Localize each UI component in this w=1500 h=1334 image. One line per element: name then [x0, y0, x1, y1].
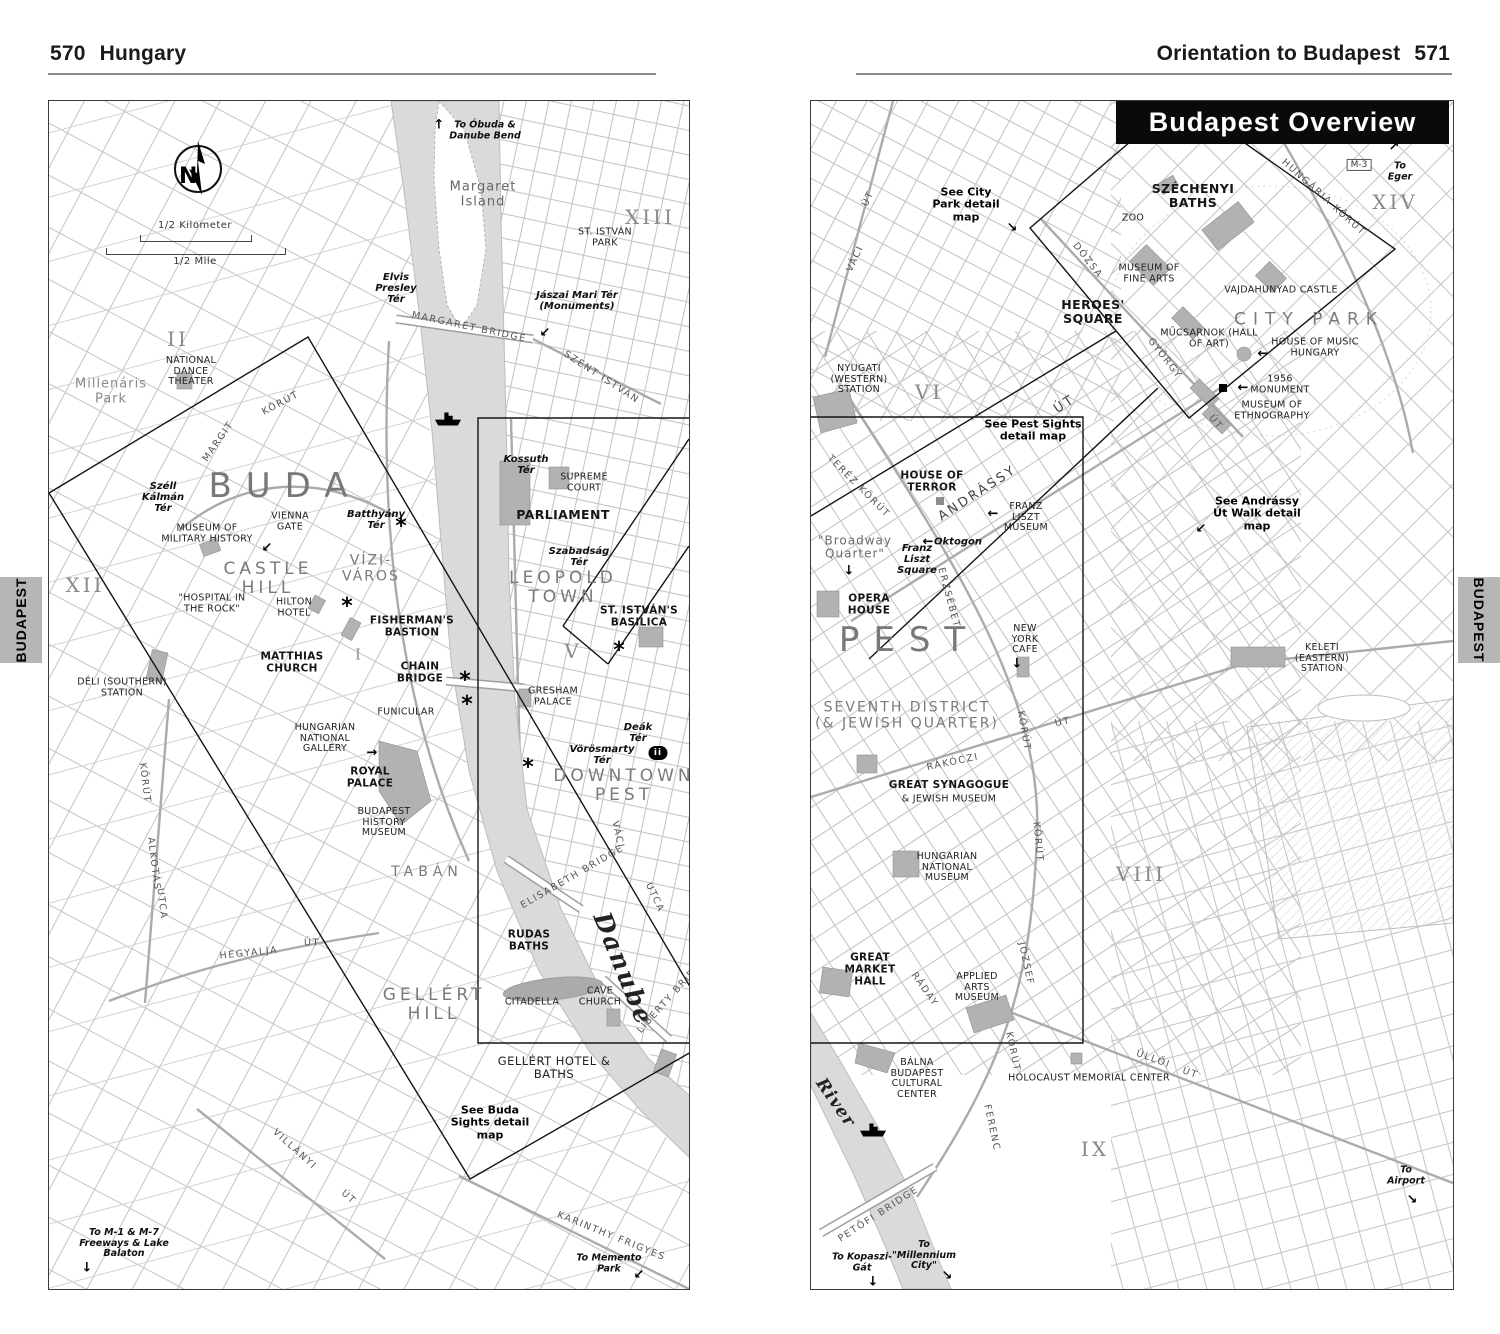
heroes-square: HEROES' SQUARE	[1043, 298, 1143, 326]
hungarian-national-museum: HUNGARIAN NATIONAL MUSEUM	[905, 852, 990, 884]
szechenyi-baths: SZÉCHENYI BATHS	[1141, 182, 1246, 210]
district-xiii: XIII	[625, 206, 675, 228]
keleti-station: KELETI (EASTERN) STATION	[1286, 643, 1358, 675]
gellert-hotel-baths: GELLÉRT HOTEL & BATHS	[487, 1055, 622, 1081]
seventh-district: SEVENTH DISTRICT (& JEWISH QUARTER)	[812, 700, 1002, 731]
millennium-arrow-icon: ↘	[942, 1269, 953, 1284]
museum-fine-arts: MUSEUM OF FINE ARTS	[1108, 263, 1190, 284]
parliament: PARLIAMENT	[516, 508, 610, 522]
guidebook-spread: 570Hungary Orientation to Budapest571 BU…	[0, 0, 1500, 1334]
ny-cafe-arrow-icon: ↓	[1012, 657, 1023, 672]
right-section-title: Orientation to Budapest	[1157, 42, 1401, 65]
korut-jozsef2: KÖRÚT	[1030, 821, 1044, 862]
batthyany-metro-icon: *	[395, 524, 407, 530]
compass-n-label: N	[179, 164, 197, 189]
rudas-baths: RUDAS BATHS	[500, 929, 558, 953]
broadway-arrow-icon: ↓	[844, 564, 855, 579]
museum-ethnography: MUSEUM OF ETHNOGRAPHY	[1212, 400, 1332, 421]
opera-house: OPERA HOUSE	[840, 593, 898, 617]
hungarian-national-gallery: HUNGARIAN NATIONAL GALLERY	[279, 723, 371, 755]
vienna-gate: VIENNA GATE	[263, 511, 318, 532]
jaszai-arrow-icon: ↙	[540, 326, 551, 341]
pest-map: Budapest Overview VÁCIÚTSee City Park de…	[810, 100, 1454, 1290]
scale-km-bar	[140, 235, 252, 242]
deli-station: DÉLI (SOUTHERN) STATION	[76, 677, 168, 698]
vorosmarty-ter: Vörösmarty Tér	[565, 744, 640, 766]
applied-arts-museum: APPLIED ARTS MUSEUM	[946, 972, 1008, 1004]
to-eger: To Eger	[1383, 161, 1417, 182]
st-istvan-park: ST. ISTVÁN PARK	[564, 227, 646, 248]
vienna-gate-arrow-icon: ↙	[262, 541, 273, 556]
deak-ter: Deák Tér	[618, 722, 658, 744]
gallery-arrow-icon: →	[367, 746, 378, 761]
jaszai-mari-ter: Jászai Mari Tér (Monuments)	[528, 290, 626, 312]
vizivaros-area: VÍZI- VÁROS	[340, 553, 402, 584]
district-v: V	[564, 640, 581, 662]
liszt-museum-arrow-icon: ←	[988, 507, 999, 522]
holocaust-memorial: HOLOCAUST MEMORIAL CENTER	[1007, 1074, 1172, 1085]
district-xiv: XIV	[1372, 191, 1418, 213]
scale-mile-label: 1/2 Mile	[173, 256, 217, 267]
right-header-rule	[856, 73, 1452, 75]
to-kopaszi-gat: To Kopaszi-Gát	[831, 1252, 893, 1273]
see-andrassy-walk: See Andrássy Út Walk detail map	[1207, 496, 1307, 533]
terror-house-marker-icon	[936, 497, 944, 505]
left-header-rule	[48, 73, 656, 75]
nyugati-station: NYUGATI (WESTERN) STATION	[813, 364, 905, 396]
vajdahunyad-castle: VAJDAHUNYAD CASTLE	[1219, 286, 1344, 297]
see-pest-sights: See Pest Sights detail map	[973, 419, 1093, 444]
fishermans-bastion: FISHERMAN'S BASTION	[360, 615, 465, 639]
airport-arrow-icon: ↘	[1407, 1193, 1418, 1208]
gellert-hill: GELLÉRT HILL	[369, 986, 499, 1024]
right-budapest-tab: BUDAPEST	[1458, 577, 1500, 663]
right-page-header: Orientation to Budapest571	[1157, 42, 1450, 66]
hilton-hotel: HILTON HOTEL	[270, 597, 318, 618]
left-page-number: 570	[50, 42, 86, 65]
citadella: CITADELLA	[505, 998, 559, 1009]
elvis-presley-ter: Elvis Presley Tér	[370, 272, 422, 306]
to-millennium-city: To "Millennium City"	[885, 1240, 963, 1272]
st-istvans-basilica: ST. ISTVÁN'S BASILICA	[595, 605, 683, 629]
district-ii: II	[167, 328, 189, 350]
gresham-palace: GRESHAM PALACE	[517, 686, 589, 707]
right-tab-label: BUDAPEST	[1471, 577, 1487, 662]
funicular: FUNICULAR	[377, 708, 434, 719]
to-obuda-note: To Óbuda & Danube Bend	[439, 120, 531, 141]
matthias-church: MATTHIAS CHURCH	[246, 651, 338, 675]
andrassy-walk-arrow-icon: ↙	[1196, 522, 1207, 537]
m3-badge: M-3	[1347, 159, 1372, 171]
left-tab-label: BUDAPEST	[13, 577, 29, 662]
left-section-title: Hungary	[100, 42, 187, 65]
right-page-number: 571	[1414, 42, 1450, 65]
see-city-park: See City Park detail map	[927, 187, 1005, 224]
monument-1956: 1956 MONUMENT	[1240, 374, 1320, 395]
szabadsag-ter: Szabadság Tér	[545, 546, 613, 568]
monument-arrow-icon: ←	[1238, 381, 1249, 396]
see-buda-sights: See Buda Sights detail map	[446, 1105, 534, 1142]
leopold-town: LEOPOLD TOWN	[508, 569, 618, 607]
royal-palace: ROYAL PALACE	[336, 766, 404, 790]
millenaris-park: Millenáris Park	[70, 377, 152, 406]
stadium-oval	[1318, 695, 1410, 721]
fishermans-star-icon: *	[341, 604, 353, 610]
tourist-info-icon: ii	[649, 746, 668, 760]
kossuth-ter: Kossuth Tér	[500, 454, 552, 476]
scale-mile-bar	[106, 248, 286, 255]
new-york-cafe: NEW YORK CAFE	[1002, 624, 1048, 656]
kopaszi-arrow-icon: ↓	[868, 1275, 879, 1290]
district-ix: IX	[1081, 1138, 1109, 1160]
monument-1956-icon	[1219, 384, 1227, 392]
balna-center: BÁLNA BUDAPEST CULTURAL CENTER	[876, 1058, 958, 1101]
house-of-music: HOUSE OF MUSIC HUNGARY	[1256, 337, 1374, 358]
to-airport: To Airport	[1385, 1165, 1427, 1186]
oktogon-arrow-icon: ←	[923, 535, 934, 550]
house-of-terror: HOUSE OF TERROR	[888, 470, 976, 494]
pest-area: PEST	[839, 621, 979, 659]
hegyalja-ut: ÚT	[304, 939, 320, 950]
museum-military-history: MUSEUM OF MILITARY HISTORY	[160, 523, 255, 544]
great-market-hall: GREAT MARKET HALL	[836, 952, 904, 987]
taban-area: TABÁN	[391, 865, 463, 881]
national-dance-theater: NATIONAL DANCE THEATER	[150, 356, 232, 388]
left-budapest-tab: BUDAPEST	[0, 577, 42, 663]
kerepesi-cemetery	[1247, 699, 1453, 939]
district-i: I	[355, 647, 361, 664]
memento-arrow-icon: ↙	[634, 1268, 645, 1283]
broadway-quarter: "Broadway Quarter"	[810, 535, 901, 562]
city-park-arrow-icon: ↘	[1007, 221, 1018, 236]
vorosmarty-star-icon: *	[522, 765, 534, 771]
m1-freeway-arrow-icon: ↓	[82, 1261, 93, 1276]
district-vi: VI	[915, 381, 943, 403]
hospital-in-the-rock: "HOSPITAL IN THE ROCK"	[176, 593, 248, 614]
left-page-header: 570Hungary	[50, 42, 186, 66]
to-m1-m7: To M-1 & M-7 Freeways & Lake Balaton	[67, 1228, 182, 1260]
downtown-pest: DOWNTOWN PEST	[549, 767, 690, 805]
franz-liszt-museum: FRANZ LISZT MUSEUM	[997, 502, 1055, 534]
buda-area: BUDA	[208, 467, 361, 505]
chain-bridge-star2-icon: *	[461, 702, 473, 708]
zoo: ZOO	[1122, 214, 1144, 225]
obuda-arrow-icon: ↑	[434, 118, 445, 133]
chain-bridge: CHAIN BRIDGE	[386, 661, 454, 685]
great-synagogue: GREAT SYNAGOGUE	[889, 780, 1009, 792]
map-title-banner: Budapest Overview	[1116, 101, 1449, 144]
mucsarnok: MŰCSARNOK (HALL OF ART)	[1154, 328, 1264, 349]
basilica-star-icon: *	[613, 648, 625, 654]
scale-km-label: 1/2 Kilometer	[158, 220, 232, 231]
szell-kalman-ter: Széll Kálmán Tér	[134, 481, 192, 515]
jewish-museum: & JEWISH MUSEUM	[902, 795, 996, 806]
chain-bridge-star-icon: *	[459, 678, 471, 684]
supreme-court: SUPREME COURT	[553, 472, 615, 493]
district-xii: XII	[65, 574, 104, 596]
compass-rose: N	[168, 139, 226, 197]
margaret-island: Margaret Island	[442, 180, 524, 209]
oktogon: Oktogon	[934, 536, 982, 547]
cave-church: CAVE CHURCH	[571, 986, 629, 1007]
budapest-history-museum: BUDAPEST HISTORY MUSEUM	[342, 807, 427, 839]
district-viii: VIII	[1116, 863, 1166, 885]
music-house-arrow-icon: ←	[1258, 347, 1269, 362]
buda-map: N 1/2 Kilometer 1/2 Mile To Óbuda & Danu…	[48, 100, 690, 1290]
